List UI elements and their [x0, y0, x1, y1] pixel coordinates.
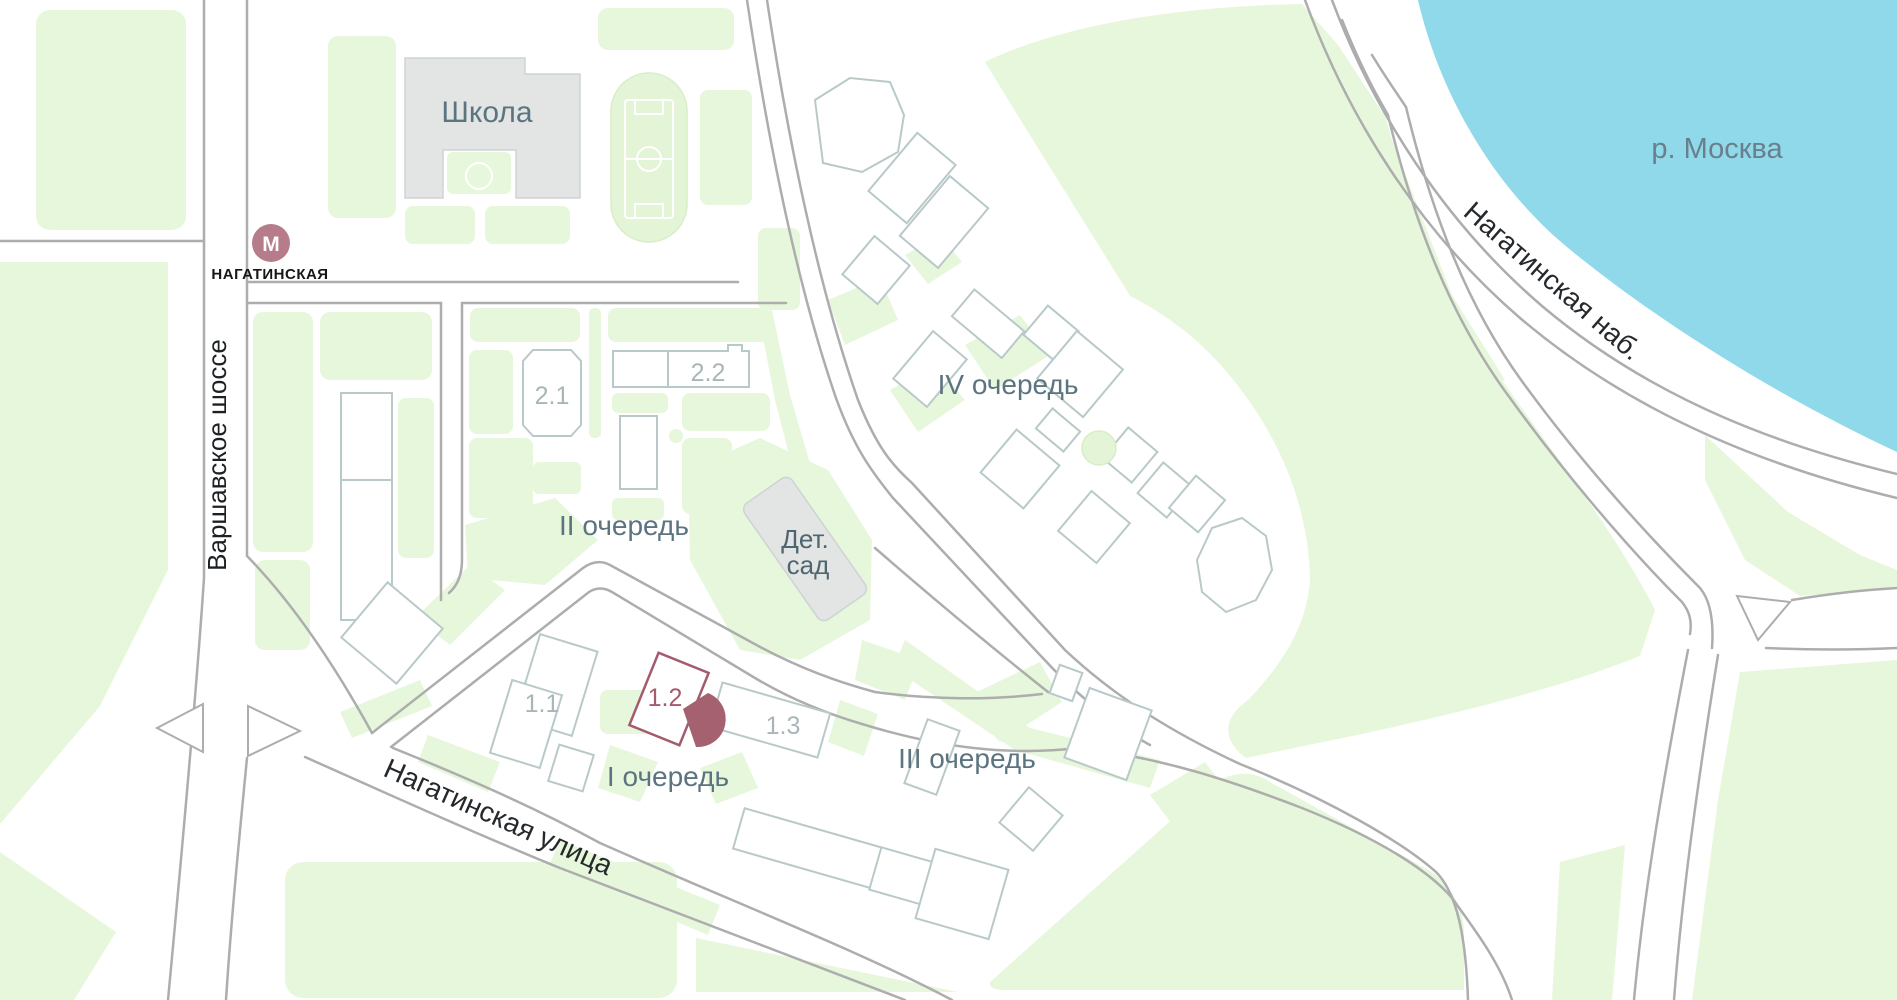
- lawn-dot: [669, 429, 683, 443]
- label-river: р. Москва: [1651, 133, 1783, 165]
- metro-station[interactable]: М НАГАТИНСКАЯ: [211, 224, 328, 283]
- park-phase-3-south: [990, 774, 1464, 990]
- map-canvas[interactable]: М НАГАТИНСКАЯ Школа Варшавское шоссе 2.1…: [0, 0, 1897, 1000]
- lawn: [469, 438, 533, 518]
- label-building-1-3: 1.3: [766, 712, 801, 740]
- lawn: [700, 90, 752, 205]
- label-school: Школа: [441, 96, 532, 129]
- road-south-west: [1634, 650, 1688, 1000]
- lawn: [682, 393, 770, 431]
- lawn: [1705, 435, 1897, 596]
- school-courtyard: [447, 152, 511, 194]
- park-top-left: [36, 10, 186, 230]
- lawn: [485, 206, 570, 244]
- building-2-2[interactable]: [613, 345, 749, 387]
- building-outline: [815, 78, 904, 172]
- lawn: [405, 206, 475, 244]
- label-building-1-1: 1.1: [525, 690, 560, 718]
- building-outline: [620, 416, 657, 489]
- road-phase2-left: [449, 303, 462, 593]
- traffic-island: [248, 706, 300, 756]
- park-bottom-right: [1692, 660, 1897, 1000]
- label-phase-2: II очередь: [559, 510, 689, 541]
- lawn: [340, 680, 432, 738]
- lawn: [328, 36, 396, 218]
- building-outline: [1058, 491, 1130, 563]
- building-outline: [548, 745, 594, 792]
- metro-station-label: НАГАТИНСКАЯ: [211, 266, 328, 283]
- stadium: [611, 73, 687, 242]
- road-east-south: [1766, 648, 1897, 650]
- lawn: [608, 308, 770, 342]
- park-left-strip: [0, 262, 168, 824]
- park-bottom-left-corner: [0, 852, 116, 1000]
- building-outline: [1197, 518, 1272, 612]
- lawn: [533, 462, 581, 494]
- lawn: [398, 398, 434, 558]
- road-varshavskoe-east-south: [226, 758, 247, 1000]
- traffic-island: [157, 704, 203, 752]
- lawn: [320, 312, 432, 380]
- lawn: [758, 228, 800, 310]
- label-building-2-2: 2.2: [691, 359, 726, 387]
- lawn: [470, 308, 580, 342]
- lawn: [598, 8, 734, 50]
- lawn: [612, 393, 668, 413]
- label-phase-1: I очередь: [607, 761, 729, 792]
- metro-letter: М: [262, 233, 280, 256]
- label-phase-3: III очередь: [898, 743, 1036, 774]
- label-kindergarten-line2: сад: [787, 550, 830, 580]
- label-building-2-1: 2.1: [535, 382, 570, 410]
- building-outline: [999, 787, 1062, 851]
- label-phase-4: IV очередь: [938, 369, 1079, 400]
- label-varshavskoe-shosse: Варшавское шоссе: [202, 339, 232, 571]
- traffic-island: [1737, 596, 1790, 640]
- building-outline: [981, 430, 1060, 509]
- lawn: [828, 700, 878, 756]
- building-outline: [1036, 408, 1080, 451]
- lawn: [469, 350, 513, 434]
- lawn: [589, 308, 601, 438]
- label-building-1-2: 1.2: [648, 684, 683, 712]
- lawn: [960, 662, 1062, 742]
- lawn: [253, 312, 313, 552]
- round-court: [1082, 431, 1116, 465]
- stadium-field: [611, 73, 687, 242]
- lawn: [1552, 845, 1625, 1000]
